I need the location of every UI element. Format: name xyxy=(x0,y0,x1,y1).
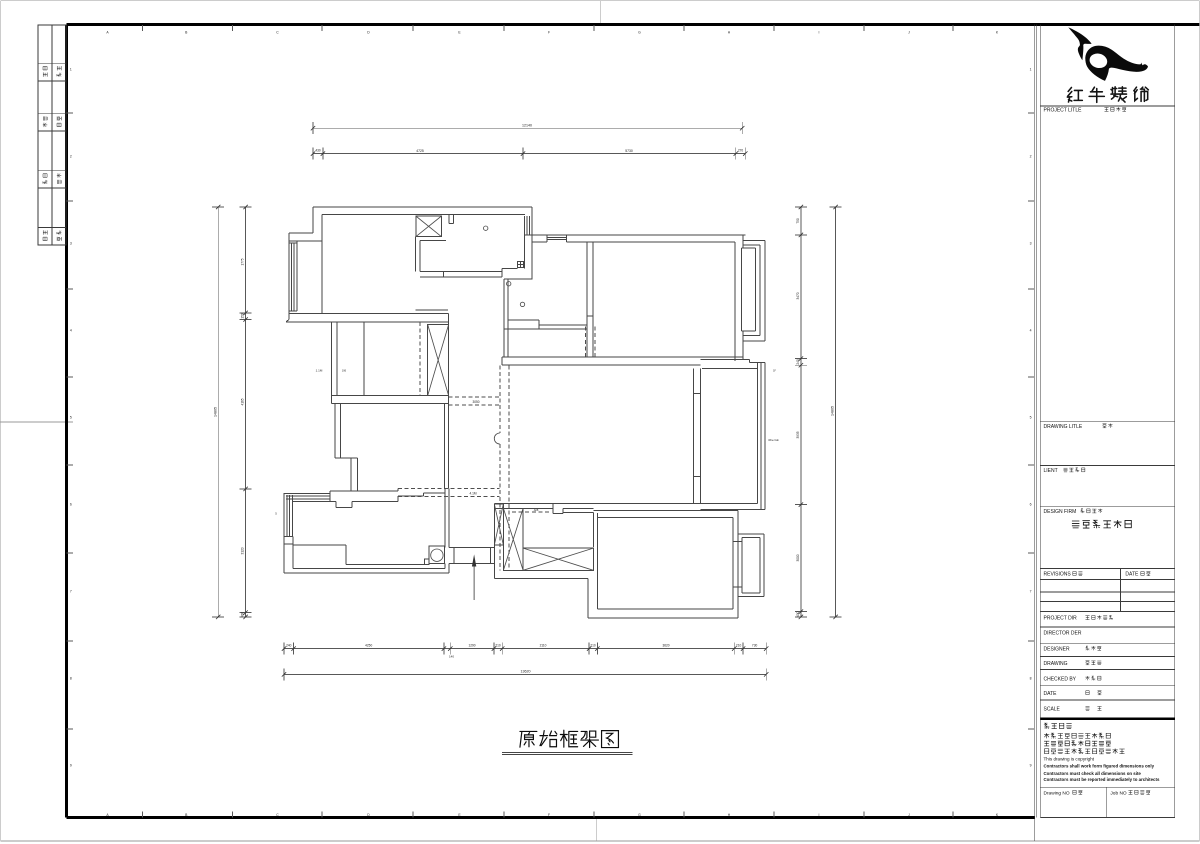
svg-text:4.1M: 4.1M xyxy=(469,492,476,496)
svg-text:2: 2 xyxy=(1030,154,1032,158)
svg-text:9: 9 xyxy=(1030,763,1032,767)
svg-text:1.1M: 1.1M xyxy=(316,369,323,373)
svg-text:3050: 3050 xyxy=(472,400,479,404)
svg-text:7: 7 xyxy=(1030,589,1032,593)
svg-text:6: 6 xyxy=(1030,502,1032,506)
svg-text:SCALE: SCALE xyxy=(1044,706,1061,712)
svg-text:DRAWING: DRAWING xyxy=(1044,661,1068,667)
svg-text:F: F xyxy=(548,31,550,35)
svg-text:430: 430 xyxy=(241,612,245,618)
svg-text:1: 1 xyxy=(1030,67,1032,71)
svg-text:REVISIONS: REVISIONS xyxy=(1044,572,1072,578)
svg-text:3: 3 xyxy=(1030,241,1032,245)
svg-text:12140: 12140 xyxy=(522,123,532,127)
svg-text:430: 430 xyxy=(315,149,321,153)
svg-text:DRAWING LITLE: DRAWING LITLE xyxy=(1044,424,1083,430)
svg-text:1: 1 xyxy=(70,67,72,71)
svg-text:240: 240 xyxy=(286,644,292,648)
svg-text:13620: 13620 xyxy=(521,669,531,673)
svg-text:DATE: DATE xyxy=(1044,691,1058,697)
svg-text:4165: 4165 xyxy=(241,398,245,405)
svg-text:730: 730 xyxy=(752,644,758,648)
svg-text:DATE: DATE xyxy=(1125,572,1139,578)
svg-text:8: 8 xyxy=(70,676,72,680)
svg-text:3: 3 xyxy=(70,241,72,245)
svg-text:140: 140 xyxy=(449,655,454,659)
svg-text:3935: 3935 xyxy=(796,431,800,438)
svg-text:DESIGNER: DESIGNER xyxy=(1044,646,1071,652)
svg-text:3120: 3120 xyxy=(241,547,245,554)
svg-text:4: 4 xyxy=(1030,328,1032,332)
svg-text:2110: 2110 xyxy=(540,644,547,648)
svg-text:Job NO: Job NO xyxy=(1110,790,1127,796)
svg-text:A08: A08 xyxy=(534,508,539,512)
svg-text:Contractors must be reported i: Contractors must be reported immediately… xyxy=(1044,777,1160,782)
svg-text:1290: 1290 xyxy=(468,644,475,648)
svg-text:4250: 4250 xyxy=(365,644,372,648)
svg-text:430: 430 xyxy=(796,611,800,617)
svg-text:PROJECT DIR: PROJECT DIR xyxy=(1044,616,1078,622)
svg-text:150: 150 xyxy=(241,313,245,319)
svg-text:210: 210 xyxy=(736,644,742,648)
svg-text:8: 8 xyxy=(1030,676,1032,680)
svg-text:F: F xyxy=(548,813,550,817)
svg-text:This drawing is copyright: This drawing is copyright xyxy=(1044,756,1095,761)
svg-text:5730: 5730 xyxy=(625,149,633,153)
svg-text:9: 9 xyxy=(70,763,72,767)
svg-text:CHECKED BY: CHECKED BY xyxy=(1044,676,1077,682)
svg-text:2: 2 xyxy=(70,154,72,158)
svg-text:G: G xyxy=(638,31,641,35)
svg-text:G: G xyxy=(638,813,641,817)
svg-text:3620: 3620 xyxy=(662,644,669,648)
svg-text:4725: 4725 xyxy=(416,149,424,153)
svg-text:Drawing NO: Drawing NO xyxy=(1044,790,1070,796)
svg-text:240: 240 xyxy=(796,359,800,365)
svg-text:I: I xyxy=(819,813,820,817)
svg-text:270: 270 xyxy=(738,149,744,153)
svg-text:210: 210 xyxy=(495,644,501,648)
svg-text:7: 7 xyxy=(70,589,72,593)
svg-text:Wine Cab: Wine Cab xyxy=(768,439,779,442)
svg-text:14805: 14805 xyxy=(213,407,217,417)
svg-text:3000: 3000 xyxy=(796,554,800,561)
svg-text:14805: 14805 xyxy=(831,406,835,416)
svg-text:LIENT: LIENT xyxy=(1044,468,1058,474)
svg-text:750: 750 xyxy=(796,218,800,224)
svg-text:I: I xyxy=(819,31,820,35)
svg-text:210: 210 xyxy=(590,644,596,648)
svg-text:5: 5 xyxy=(70,415,72,419)
svg-text:DESIGN FIRM: DESIGN FIRM xyxy=(1044,509,1077,515)
svg-text:6: 6 xyxy=(70,502,72,506)
svg-text:PROJECT LITLE: PROJECT LITLE xyxy=(1044,107,1083,113)
svg-text:DIRECTOR DER: DIRECTOR DER xyxy=(1044,631,1082,637)
svg-text:J06: J06 xyxy=(342,369,347,373)
svg-text:Contractors must check all dim: Contractors must check all dimensions on… xyxy=(1044,771,1142,776)
svg-text:J: J xyxy=(908,31,910,35)
svg-text:3470: 3470 xyxy=(796,292,800,299)
svg-text:1775: 1775 xyxy=(241,258,245,265)
svg-text:J: J xyxy=(908,813,910,817)
svg-text:5: 5 xyxy=(1030,415,1032,419)
svg-text:Contractors shall work form fi: Contractors shall work form figured dime… xyxy=(1044,764,1155,769)
svg-text:4: 4 xyxy=(70,328,72,332)
